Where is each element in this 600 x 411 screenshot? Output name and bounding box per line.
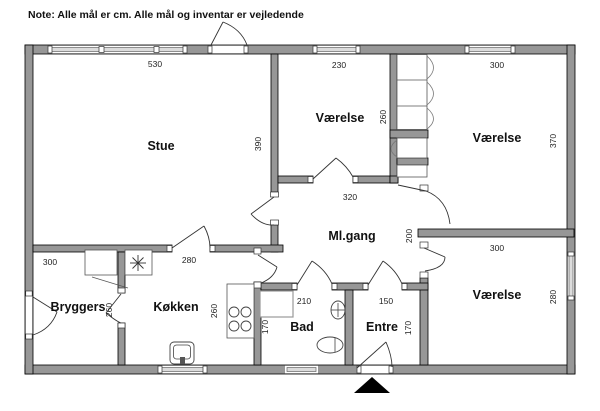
bad-window — [287, 368, 316, 372]
window-cap — [356, 46, 360, 53]
dim-bryggers-width: 300 — [43, 257, 57, 267]
dim-bryggers-depth: 260 — [104, 303, 114, 317]
door-cap — [292, 284, 297, 290]
midroom-door-arc — [336, 158, 353, 177]
kitchen-faucet — [180, 357, 185, 364]
door-cap — [244, 46, 248, 53]
door-cap — [332, 284, 337, 290]
window-tick — [99, 47, 104, 53]
room-label-vaerelse-topright: Værelse — [473, 131, 522, 145]
stove-burner — [229, 321, 239, 331]
dim-kokken-width: 280 — [182, 255, 196, 265]
room-label-stue: Stue — [147, 139, 174, 153]
entre-door-arc — [383, 261, 402, 284]
window-cap — [568, 252, 574, 256]
dim-vaerelse-mid-depth: 260 — [378, 110, 388, 124]
stove-burner — [241, 307, 251, 317]
dim-vaerelse-topright-width: 300 — [490, 60, 504, 70]
door-cap — [254, 282, 261, 288]
door-cap — [26, 334, 33, 339]
room-label-kokken: Køkken — [153, 300, 198, 314]
stue-kokken-door-leaf — [172, 226, 204, 248]
wall-entre-right — [420, 278, 428, 365]
wall-right-rooms-separator — [418, 229, 574, 237]
toprightroom-door-arc — [426, 191, 450, 224]
dim-mlgang-depth: 200 — [404, 229, 414, 243]
floor-plan-page: Note: Alle mål er cm. Alle mål og invent… — [0, 0, 600, 411]
bryggers-door-arc — [33, 312, 57, 335]
interior-walls — [33, 54, 574, 365]
dim-vaerelse-bottomright-depth: 280 — [548, 290, 558, 304]
kokken-window — [160, 368, 205, 372]
bad-door-arc — [312, 261, 332, 284]
wall-bryggers-kokken-lower — [118, 323, 125, 365]
room-label-vaerelse-mid: Værelse — [316, 111, 365, 125]
dim-bad-width: 210 — [297, 296, 311, 306]
wall-bad-entre-top — [332, 283, 368, 290]
wall-exterior-right — [567, 45, 575, 374]
window-cap — [183, 46, 187, 53]
kokken-hall-door-arc — [261, 267, 277, 283]
stove-burner — [229, 307, 239, 317]
toprightroom-window — [467, 48, 513, 52]
wardrobe-block — [397, 55, 427, 130]
door-cap — [308, 177, 313, 183]
door-cap — [353, 177, 358, 183]
door-cap — [254, 248, 261, 254]
room-label-bryggers: Bryggers — [51, 300, 106, 314]
note-text: Note: Alle mål er cm. Alle mål og invent… — [28, 9, 304, 21]
dim-bad-depth: 170 — [260, 320, 270, 334]
room-label-entre: Entre — [366, 320, 398, 334]
door-cap — [420, 242, 428, 248]
wall-stue-bottom-right — [210, 245, 283, 252]
dim-entre-width: 150 — [379, 296, 393, 306]
window-cap — [511, 46, 515, 53]
dim-stue-depth: 390 — [253, 137, 263, 151]
door-cap — [210, 246, 215, 252]
bad-door-leaf — [297, 261, 312, 285]
wardrobe-door-arc — [427, 56, 434, 79]
closet-cell — [397, 138, 427, 158]
window-tick — [154, 47, 159, 53]
stove-burner — [241, 321, 251, 331]
wardrobe-door-arc — [427, 108, 434, 129]
room-label-bad: Bad — [290, 320, 314, 334]
window-cap — [203, 366, 207, 373]
terrace-door-leaf — [211, 22, 223, 45]
door-cap — [389, 366, 393, 373]
stue-hall-door-leaf — [251, 197, 274, 214]
entre-door-leaf — [368, 261, 383, 285]
bryggers-appliance — [85, 250, 117, 275]
window-cap — [568, 296, 574, 300]
door-cap — [420, 272, 428, 278]
wall-bad-entre-separator — [345, 290, 353, 365]
door-cap — [363, 284, 368, 290]
dim-kokken-depth: 260 — [209, 304, 219, 318]
shower-symbol — [260, 291, 293, 317]
window-cap — [313, 46, 317, 53]
door-cap — [118, 323, 125, 328]
bryggers-door-gap — [26, 296, 33, 334]
bottomrightroom-door-leaf — [424, 248, 445, 257]
midroom-door-leaf — [313, 158, 336, 179]
room-label-mlgang: Ml.gang — [328, 229, 375, 243]
wall-bad-top — [261, 283, 297, 290]
floor-plan-svg: Note: Alle mål er cm. Alle mål og invent… — [0, 0, 600, 411]
wall-closet-stub2 — [397, 158, 428, 165]
midroom-window — [315, 48, 358, 52]
stue-window — [50, 48, 185, 52]
front-door-gap — [357, 366, 393, 374]
door-cap — [118, 288, 125, 293]
wardrobe-door-arc — [427, 82, 434, 105]
stue-kokken-door-arc — [204, 226, 210, 248]
front-door-arc — [386, 342, 392, 367]
door-cap — [167, 246, 172, 252]
wall-closet-stub1 — [390, 130, 428, 138]
entrance-marker-icon — [354, 377, 390, 393]
terrace-door-arc — [223, 22, 247, 45]
kokken-hall-door-leaf — [258, 255, 277, 267]
window-cap — [158, 366, 162, 373]
door-cap — [208, 46, 212, 53]
door-cap — [26, 291, 33, 296]
dim-mlgang-width: 320 — [343, 192, 357, 202]
room-label-vaerelse-bottomright: Værelse — [473, 288, 522, 302]
door-cap — [271, 220, 279, 225]
dim-vaerelse-topright-depth: 370 — [548, 134, 558, 148]
window-cap — [48, 46, 52, 53]
door-cap — [271, 192, 279, 197]
terrace-door-gap — [208, 46, 248, 54]
front-door-leaf — [357, 342, 386, 368]
dim-vaerelse-mid-width: 230 — [332, 60, 346, 70]
dim-entre-depth: 170 — [403, 321, 413, 335]
bottomrightroom-door-arc — [425, 257, 445, 271]
dim-stue-width: 530 — [148, 59, 162, 69]
dim-vaerelse-bottomright-width: 300 — [490, 243, 504, 253]
wall-closet-left — [390, 54, 397, 183]
wall-stue-right-upper — [271, 54, 278, 192]
closet-cell — [397, 165, 427, 177]
door-cap — [402, 284, 407, 290]
bottomrightroom-window — [569, 254, 573, 298]
window-cap — [465, 46, 469, 53]
toilet-symbol — [317, 337, 343, 353]
